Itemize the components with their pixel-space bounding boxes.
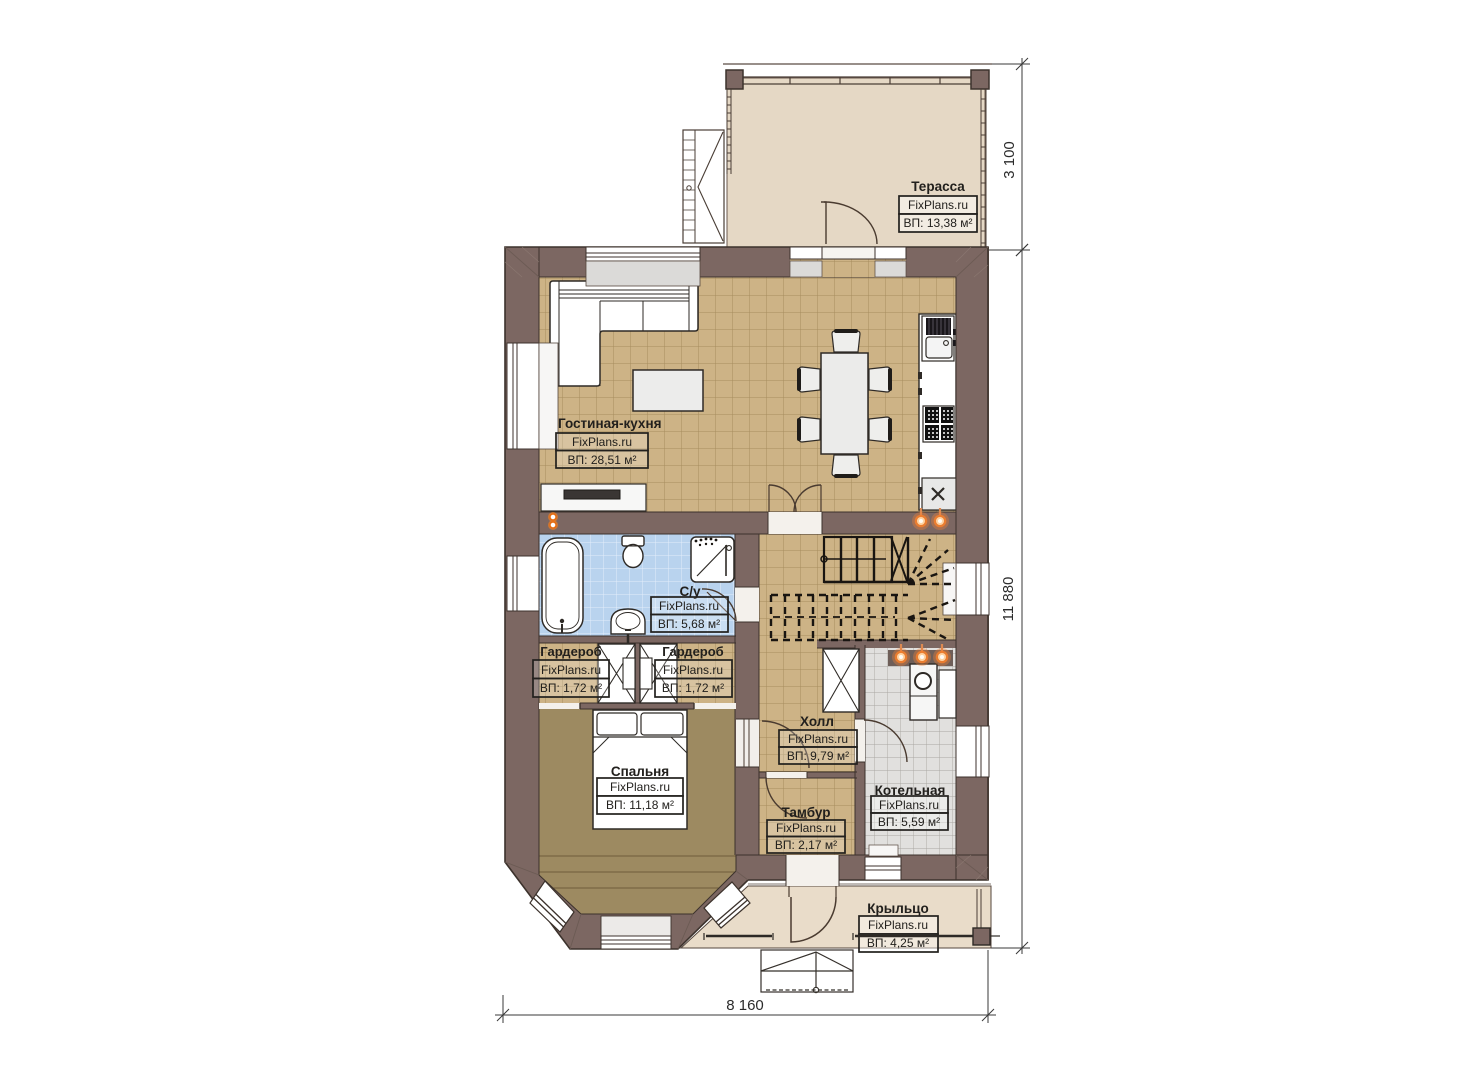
svg-text:Терасса: Терасса <box>911 179 965 194</box>
svg-text:FixPlans.ru: FixPlans.ru <box>776 821 836 835</box>
svg-text:3 100: 3 100 <box>1001 141 1018 179</box>
svg-text:Гостиная-кухня: Гостиная-кухня <box>558 416 661 431</box>
svg-text:11 880: 11 880 <box>1000 577 1017 622</box>
svg-text:ВП: 2,17 м²: ВП: 2,17 м² <box>775 838 837 852</box>
svg-text:ВП: 5,68 м²: ВП: 5,68 м² <box>658 617 720 631</box>
svg-text:Спальня: Спальня <box>611 764 669 779</box>
svg-text:Гардероб: Гардероб <box>662 644 723 659</box>
svg-text:Крыльцо: Крыльцо <box>867 901 928 916</box>
svg-text:Тамбур: Тамбур <box>782 805 831 820</box>
svg-text:FixPlans.ru: FixPlans.ru <box>788 732 848 746</box>
svg-text:ВП: 11,18 м²: ВП: 11,18 м² <box>606 798 674 812</box>
svg-text:FixPlans.ru: FixPlans.ru <box>663 663 723 677</box>
svg-text:ВП: 28,51 м²: ВП: 28,51 м² <box>568 453 637 467</box>
svg-text:ВП: 4,25 м²: ВП: 4,25 м² <box>867 936 929 950</box>
svg-text:8 160: 8 160 <box>726 997 764 1014</box>
svg-text:FixPlans.ru: FixPlans.ru <box>541 663 601 677</box>
svg-text:FixPlans.ru: FixPlans.ru <box>572 435 632 449</box>
svg-text:ВП: 1,72 м²: ВП: 1,72 м² <box>540 681 602 695</box>
svg-text:ВП: 1,72 м²: ВП: 1,72 м² <box>662 681 724 695</box>
svg-text:ВП: 5,59 м²: ВП: 5,59 м² <box>878 815 940 829</box>
svg-text:FixPlans.ru: FixPlans.ru <box>610 780 670 794</box>
svg-text:ВП: 9,79 м²: ВП: 9,79 м² <box>787 749 849 763</box>
svg-text:FixPlans.ru: FixPlans.ru <box>659 599 719 613</box>
svg-text:ВП: 13,38 м²: ВП: 13,38 м² <box>904 216 973 230</box>
svg-text:FixPlans.ru: FixPlans.ru <box>879 798 939 812</box>
svg-text:FixPlans.ru: FixPlans.ru <box>868 918 928 932</box>
svg-text:Холл: Холл <box>800 714 834 729</box>
svg-text:Гардероб: Гардероб <box>540 644 601 659</box>
svg-text:FixPlans.ru: FixPlans.ru <box>908 198 968 212</box>
